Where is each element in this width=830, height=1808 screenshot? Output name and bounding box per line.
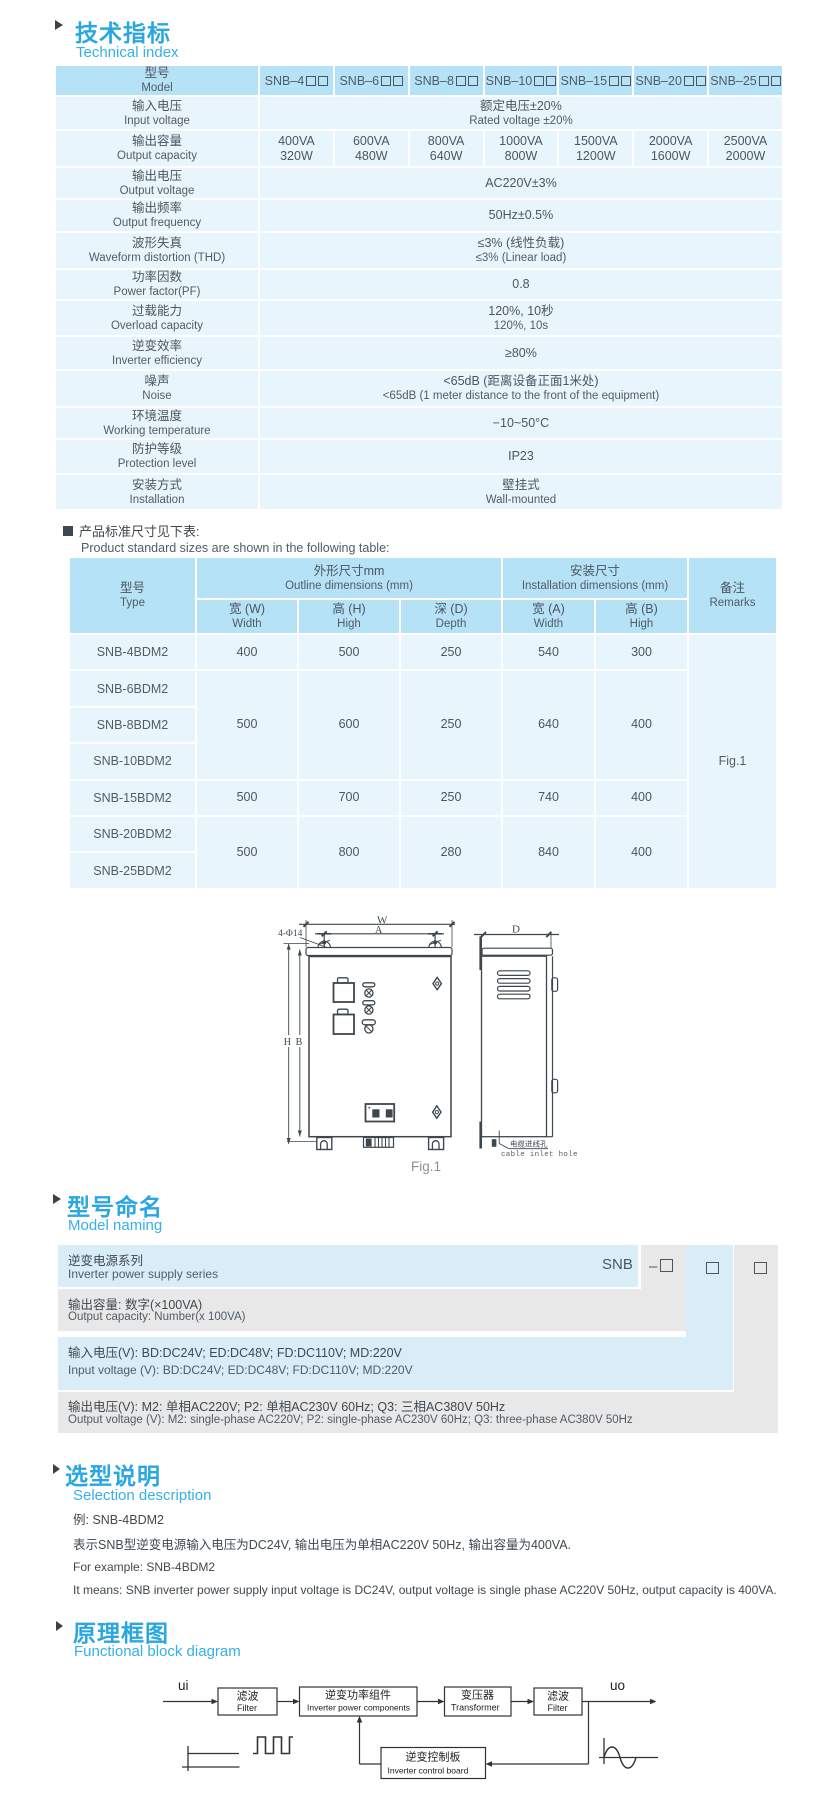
svg-text:滤波: 滤波 bbox=[237, 1690, 259, 1703]
svg-text:uo: uo bbox=[610, 1678, 625, 1693]
svg-text:Transformer: Transformer bbox=[451, 1703, 500, 1713]
svg-text:逆变功率组件: 逆变功率组件 bbox=[325, 1688, 391, 1702]
svg-text:D: D bbox=[512, 924, 520, 936]
svg-text:cable inlet hole: cable inlet hole bbox=[501, 1151, 578, 1159]
svg-text:A: A bbox=[375, 925, 383, 936]
svg-text:逆变控制板: 逆变控制板 bbox=[406, 1750, 461, 1764]
svg-text:H: H bbox=[284, 1037, 291, 1048]
svg-text:滤波: 滤波 bbox=[547, 1690, 569, 1703]
svg-text:变压器: 变压器 bbox=[461, 1688, 494, 1702]
svg-text:Inverter power components: Inverter power components bbox=[307, 1703, 410, 1713]
svg-text:Filter: Filter bbox=[237, 1703, 257, 1713]
svg-text:Inverter control board: Inverter control board bbox=[388, 1766, 469, 1776]
svg-text:4-Φ14: 4-Φ14 bbox=[278, 929, 303, 939]
svg-text:Filter: Filter bbox=[548, 1703, 568, 1713]
svg-text:ui: ui bbox=[178, 1678, 189, 1693]
svg-text:B: B bbox=[296, 1037, 303, 1048]
svg-text:电缆进线孔: 电缆进线孔 bbox=[510, 1139, 548, 1149]
